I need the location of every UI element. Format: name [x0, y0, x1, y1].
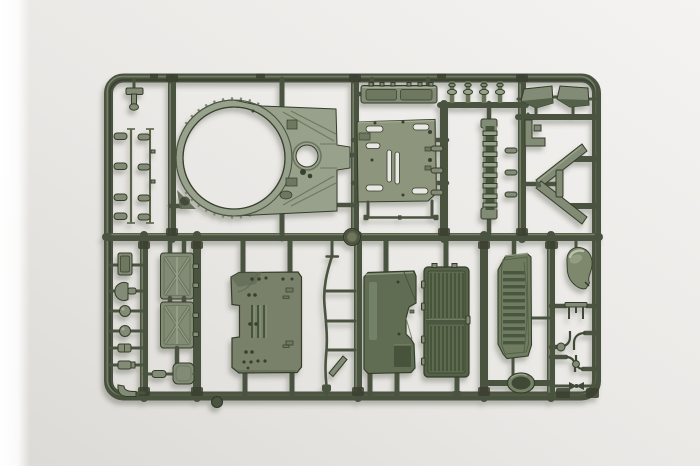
sprue-photo — [0, 0, 700, 466]
oval-hatch — [508, 373, 535, 393]
photo-stage — [0, 0, 700, 466]
runner-boss — [344, 229, 361, 246]
photo-edge-highlight — [0, 0, 30, 466]
bottom-rail-boss — [212, 397, 223, 408]
